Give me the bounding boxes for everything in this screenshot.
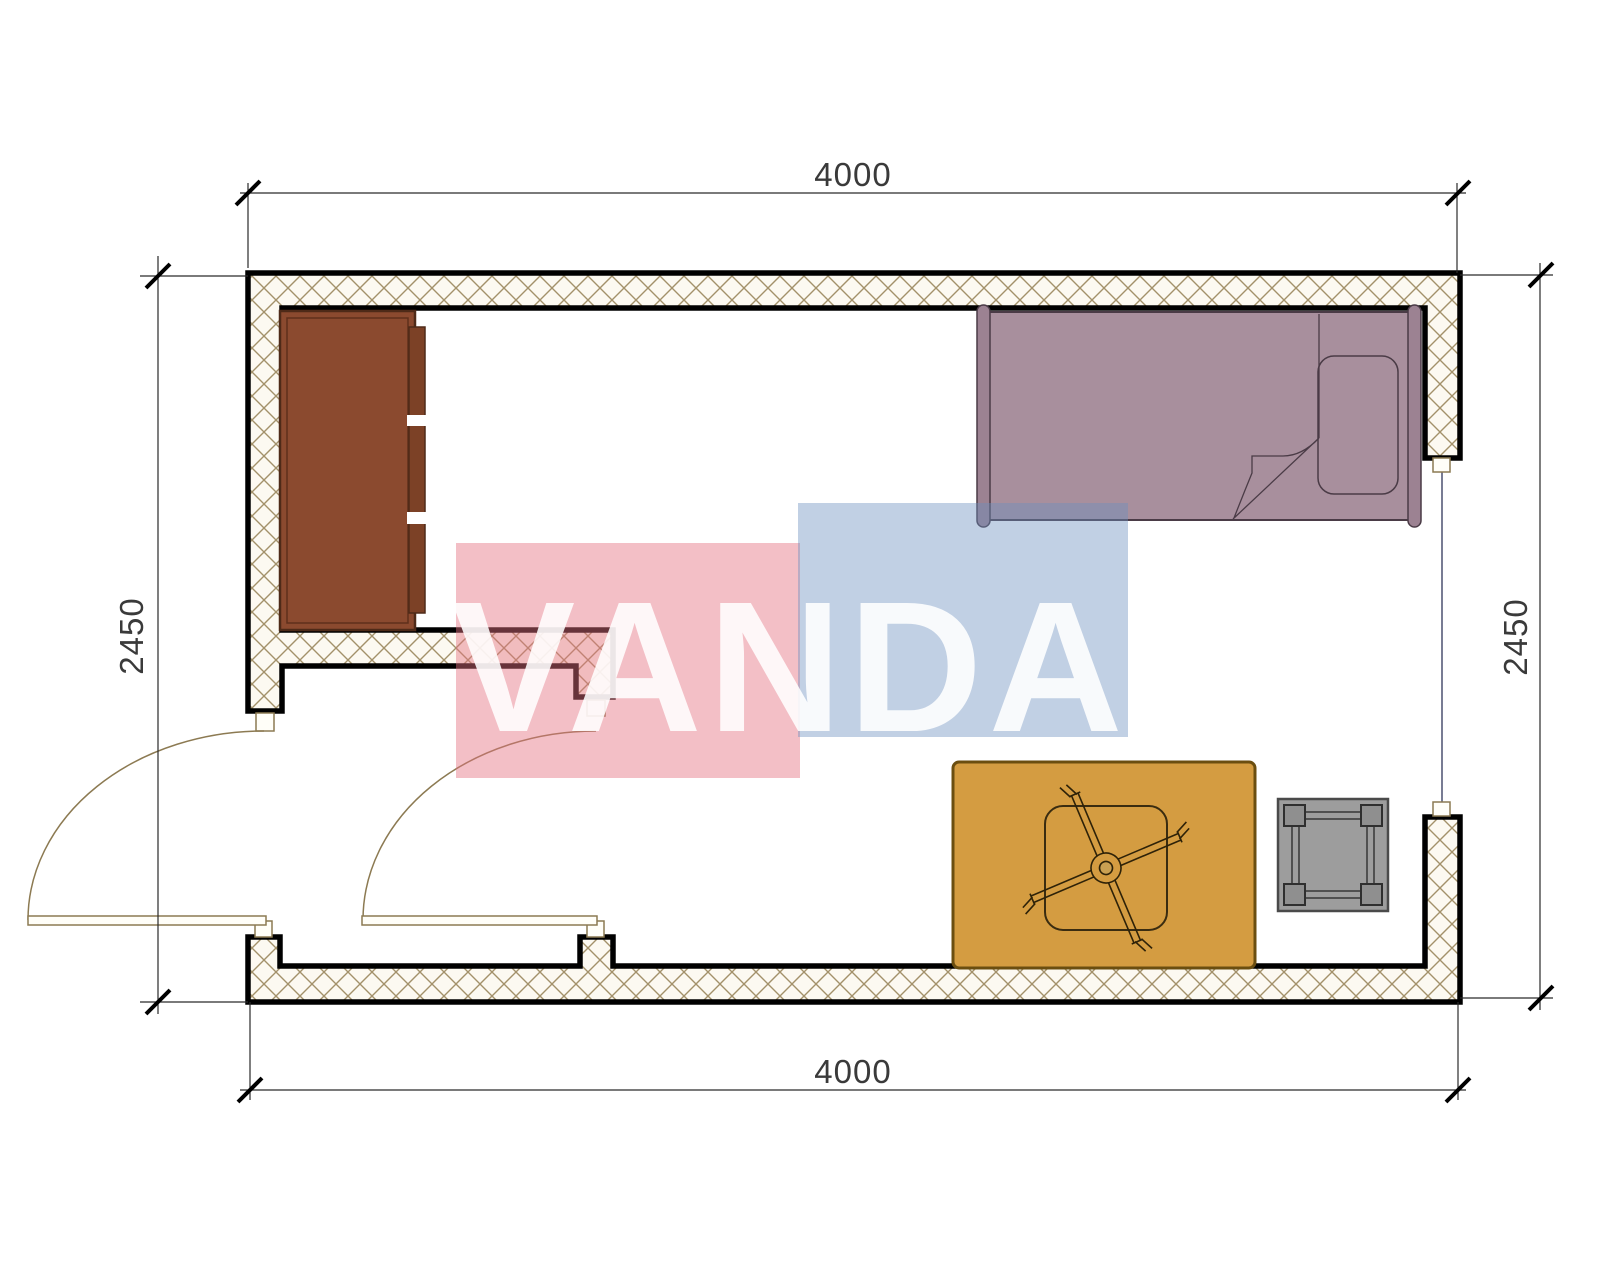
dim-label-bottom: 4000 <box>814 1053 891 1090</box>
dim-label-top: 4000 <box>814 156 891 193</box>
dimension-bottom: 4000 <box>238 1002 1470 1102</box>
wardrobe-strip-gap <box>407 415 427 426</box>
stool-leg <box>1361 884 1382 905</box>
wardrobe-door-strip <box>409 327 425 613</box>
wardrobe <box>280 311 427 630</box>
dimension-top: 4000 <box>236 156 1470 273</box>
stool-leg <box>1361 805 1382 826</box>
watermark-text: VANDA <box>451 564 1129 771</box>
bed-footboard <box>977 305 990 527</box>
floor-plan-canvas: 4000 4000 2450 2450 VANDA <box>0 0 1600 1280</box>
watermark: VANDA <box>451 503 1129 778</box>
window-jamb-bottom <box>1433 802 1450 816</box>
wardrobe-strip-gap <box>407 512 427 524</box>
door-swing-arc <box>28 731 264 920</box>
dim-label-left: 2450 <box>113 597 150 674</box>
bed-headboard <box>1408 305 1421 527</box>
dim-label-right: 2450 <box>1497 598 1534 675</box>
stool <box>1278 799 1388 911</box>
stool-leg <box>1284 805 1305 826</box>
pillow <box>1318 356 1398 494</box>
wardrobe-body <box>280 311 415 630</box>
door-left <box>28 713 274 937</box>
door-jamb <box>256 713 274 731</box>
dimension-right: 2450 <box>1460 263 1553 1010</box>
stool-leg <box>1284 884 1305 905</box>
floor-plan-page: 4000 4000 2450 2450 VANDA <box>0 0 1600 1280</box>
window-jamb-top <box>1433 458 1450 472</box>
door-leaf <box>362 916 597 925</box>
bed <box>977 305 1421 527</box>
door-leaf <box>28 916 266 925</box>
dimension-left: 2450 <box>113 256 248 1014</box>
window-right <box>1433 458 1450 816</box>
